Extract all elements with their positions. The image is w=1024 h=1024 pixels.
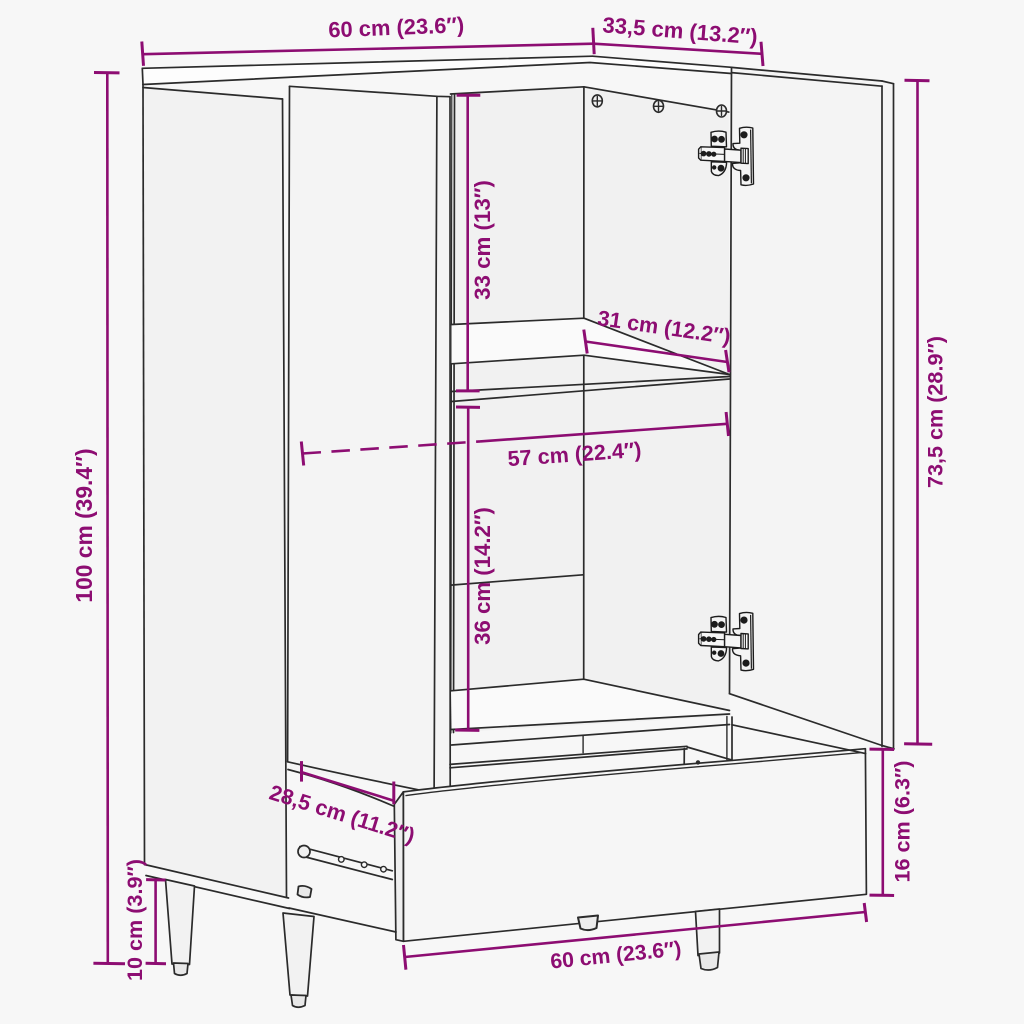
svg-text:36 cm (14.2″): 36 cm (14.2″) (470, 507, 495, 645)
svg-text:10 cm (3.9″): 10 cm (3.9″) (122, 859, 147, 981)
svg-text:100 cm (39.4″): 100 cm (39.4″) (71, 448, 97, 602)
svg-text:73,5 cm (28.9″): 73,5 cm (28.9″) (922, 336, 947, 488)
svg-text:33 cm (13″): 33 cm (13″) (470, 180, 495, 300)
svg-text:16 cm (6.3″): 16 cm (6.3″) (889, 761, 914, 883)
svg-text:60 cm (23.6″): 60 cm (23.6″) (328, 12, 465, 42)
